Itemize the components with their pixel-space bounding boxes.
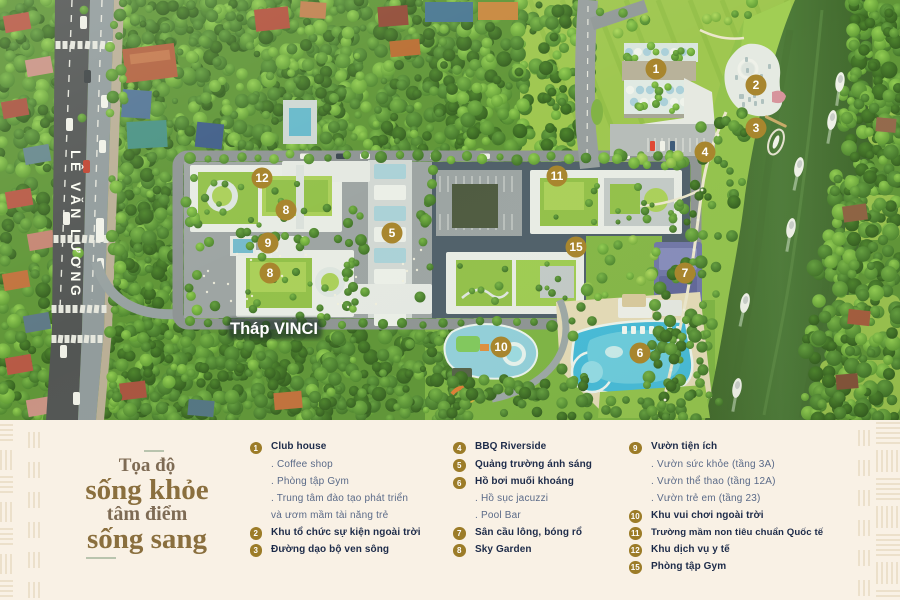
svg-text:6: 6 <box>637 346 644 360</box>
svg-text:11: 11 <box>551 169 564 183</box>
svg-text:8: 8 <box>283 203 290 217</box>
svg-text:4: 4 <box>702 145 709 159</box>
svg-text:Tháp VINCI: Tháp VINCI <box>230 320 318 338</box>
svg-text:15: 15 <box>569 240 583 254</box>
svg-text:5: 5 <box>389 226 396 240</box>
svg-text:2: 2 <box>753 78 760 92</box>
svg-text:7: 7 <box>682 266 689 280</box>
svg-text:10: 10 <box>494 340 508 354</box>
svg-text:1: 1 <box>653 62 660 76</box>
svg-text:8: 8 <box>267 266 274 280</box>
svg-text:9: 9 <box>265 236 272 250</box>
svg-text:3: 3 <box>753 121 760 135</box>
svg-text:12: 12 <box>255 171 269 185</box>
